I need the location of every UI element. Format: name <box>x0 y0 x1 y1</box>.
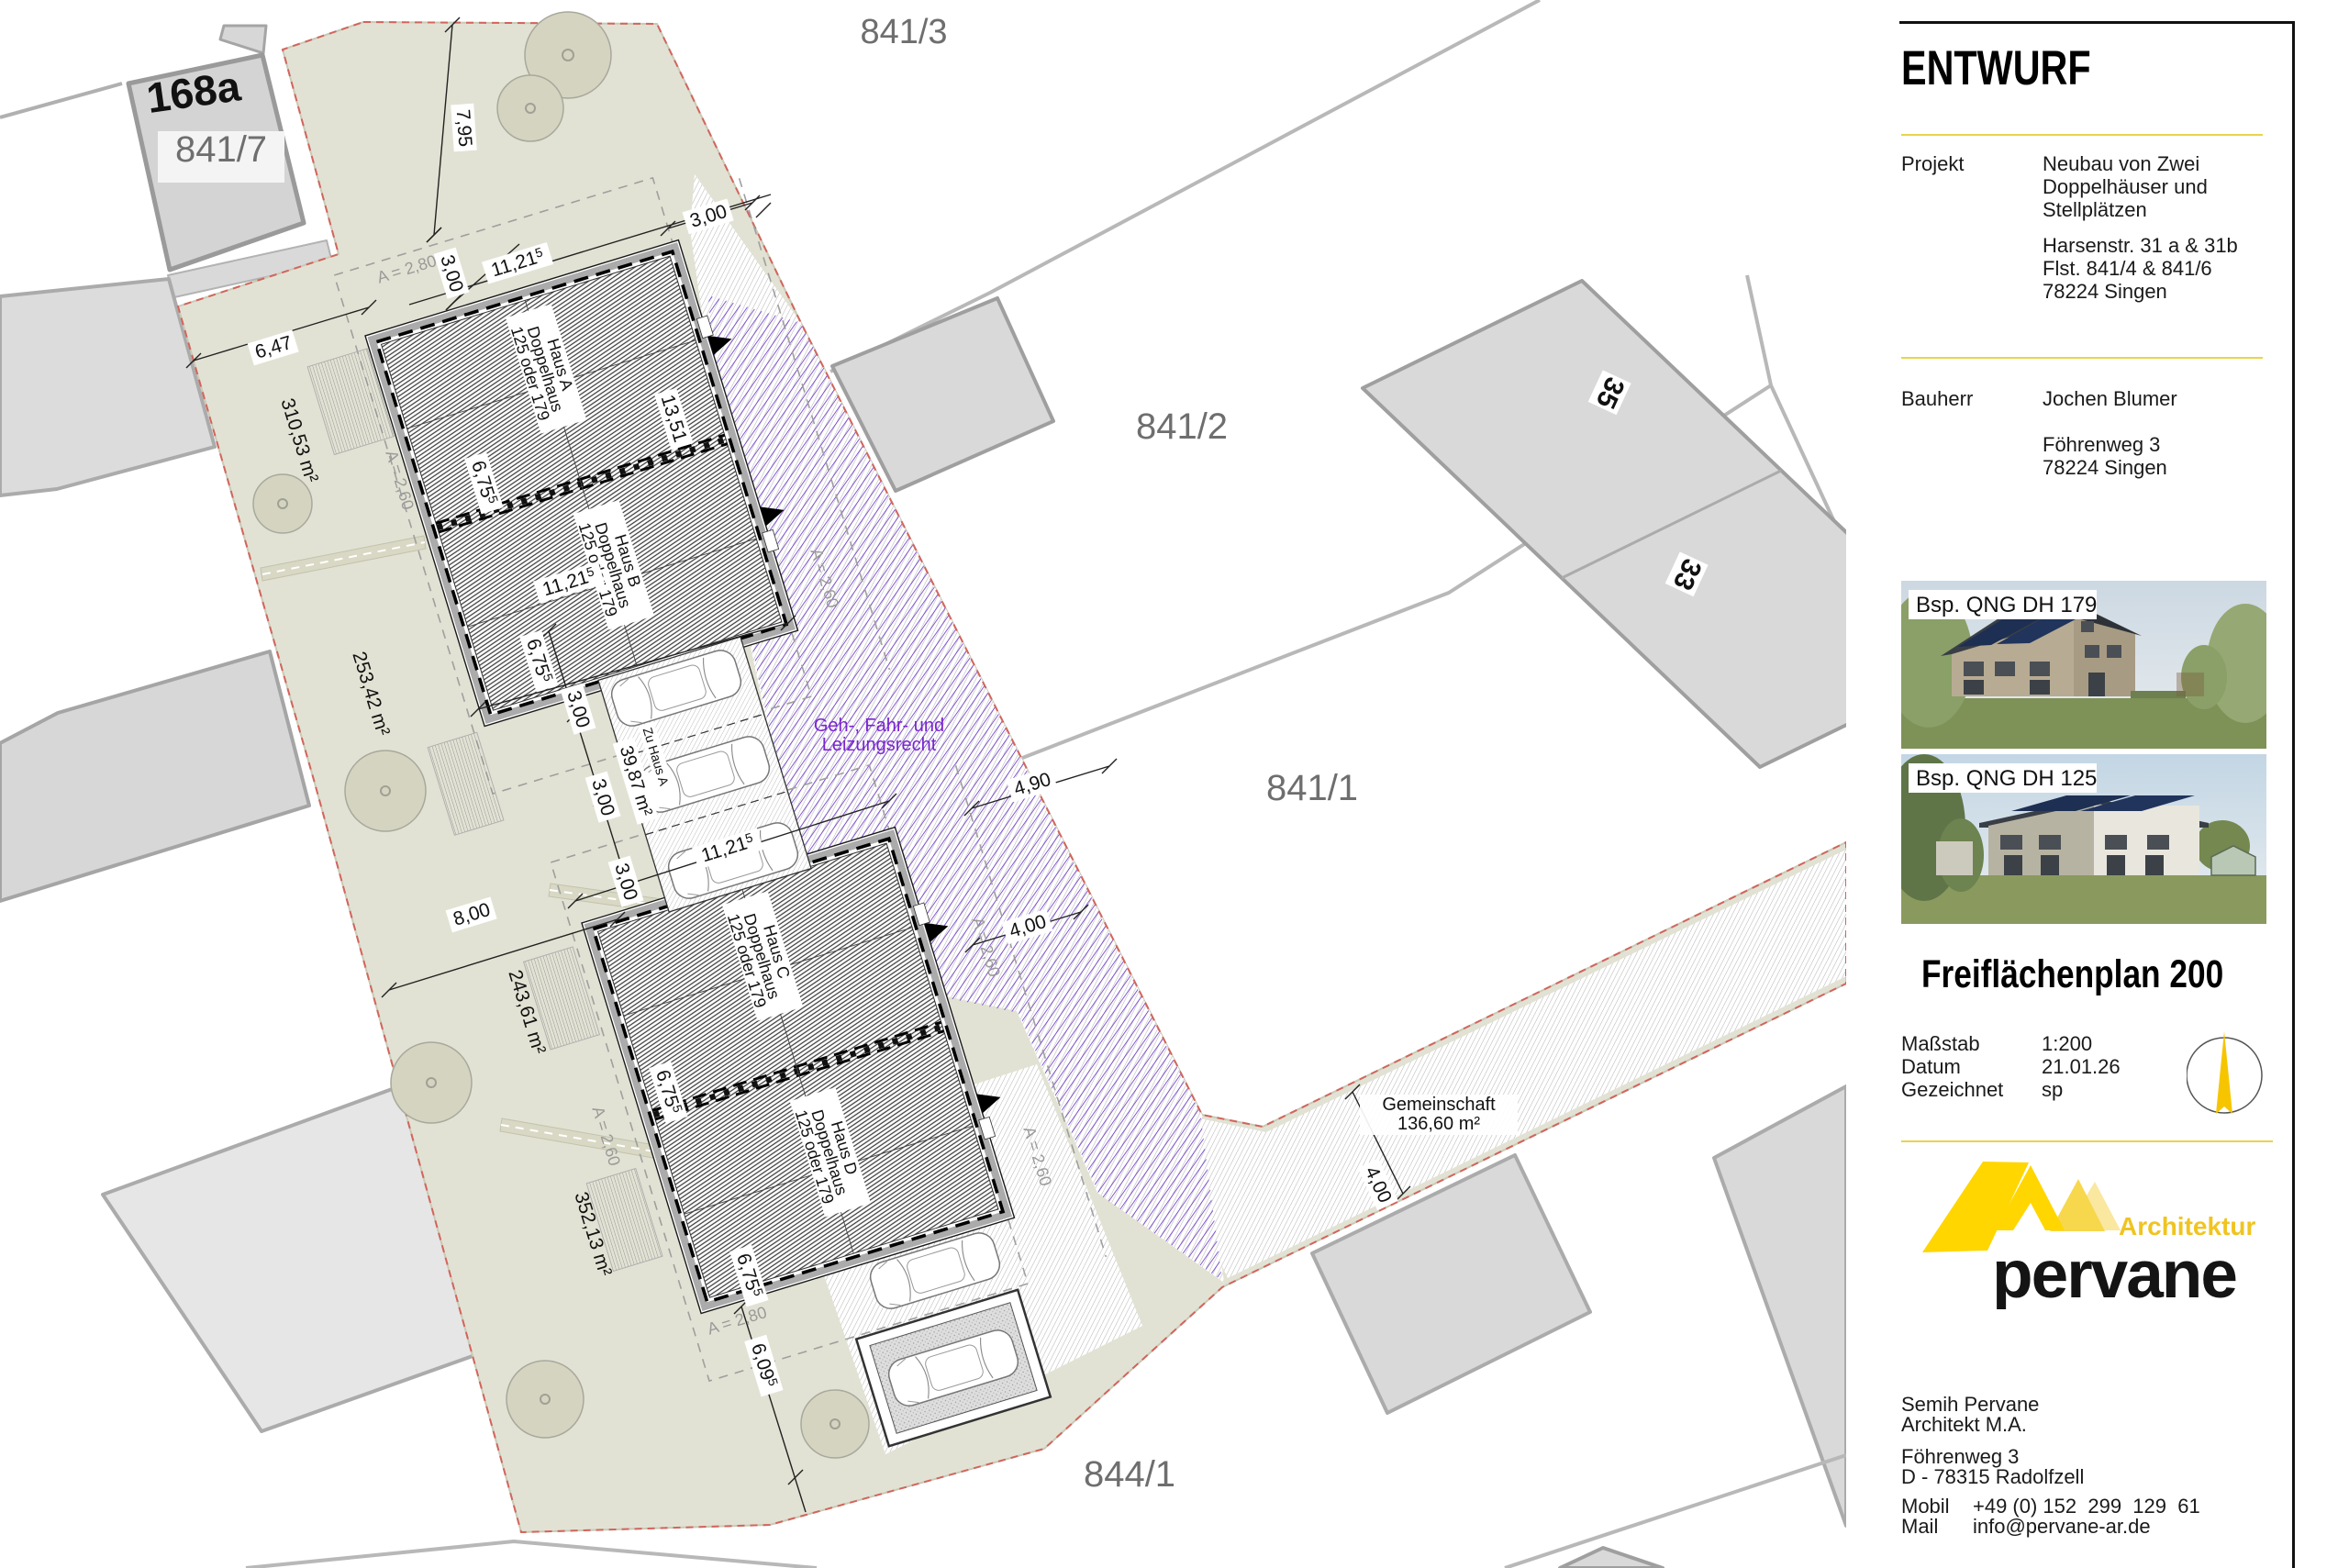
svg-text:Bsp. QNG DH 179: Bsp. QNG DH 179 <box>1916 593 2097 617</box>
svg-text:Architektur: Architektur <box>2119 1212 2255 1240</box>
svg-text:844/1: 844/1 <box>1084 1454 1175 1495</box>
svg-text:841/3: 841/3 <box>860 13 947 51</box>
svg-text:Gemeinschaft: Gemeinschaft <box>1382 1095 1496 1115</box>
svg-text:136,60 m²: 136,60 m² <box>1397 1114 1480 1134</box>
svg-text:Geh-, Fahr- und: Geh-, Fahr- und <box>814 716 944 736</box>
svg-text:841/1: 841/1 <box>1266 768 1358 808</box>
svg-text:7,95: 7,95 <box>452 108 476 147</box>
svg-text:Bsp. QNG DH 125: Bsp. QNG DH 125 <box>1916 766 2097 791</box>
svg-text:841/2: 841/2 <box>1136 406 1228 447</box>
svg-text:841/7: 841/7 <box>175 129 267 170</box>
svg-text:pervane: pervane <box>1992 1238 2236 1309</box>
svg-text:Leizungsrecht: Leizungsrecht <box>822 735 937 755</box>
